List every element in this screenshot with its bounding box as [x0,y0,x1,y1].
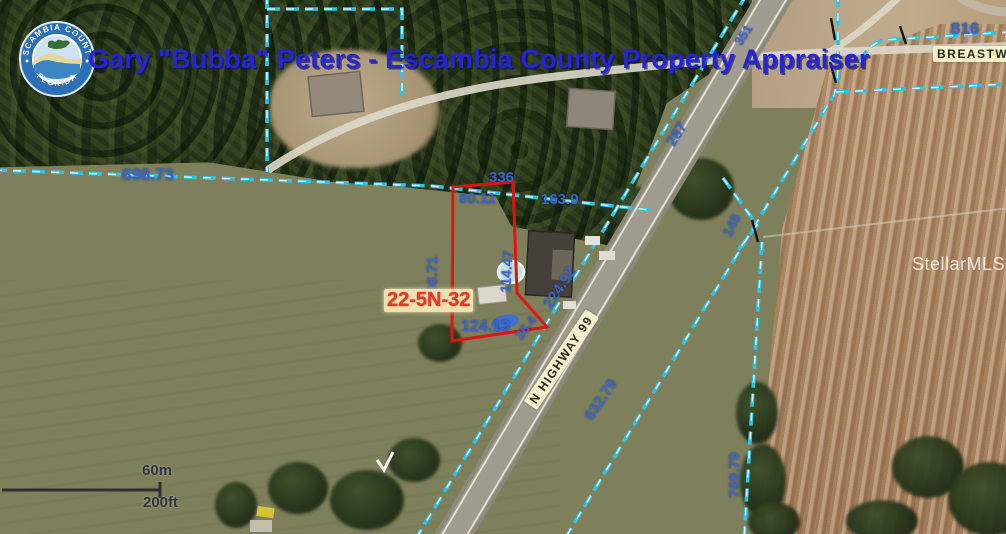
escambia-county-logo: ESCAMBIA COUNTY FLORIDA [18,20,96,98]
dimension-label: 124.13 [461,318,510,336]
dimension-label: 114.47 [497,250,516,293]
scale-bar [2,482,160,498]
corner-road [958,0,1006,12]
survey-tick [831,18,835,40]
road-number-label: 816 [951,19,979,39]
cross-street-label: BREASTWO [933,46,1006,62]
field-track [763,208,1006,237]
parcel-id-label[interactable]: 22-5N-32 [384,289,473,312]
dimension-label: 336 [489,169,514,186]
survey-tick [900,26,906,44]
stellar-mls-watermark: StellarMLS [912,254,1005,275]
page-title: Gary "Bubba" Peters - Escambia County Pr… [88,44,870,75]
dimension-label: 80.11 [459,190,496,207]
check-mark [377,452,393,470]
dimension-label: 898.73 [122,165,174,185]
dimension-label: 769.79 [726,452,743,498]
scale-imperial-label: 200ft [143,494,178,511]
map-view[interactable]: ESCAMBIA COUNTY FLORIDA Gary "Bubba" Pet… [0,0,1006,534]
scale-metric-label: 60m [142,462,172,479]
dimension-label: 163.9 [541,191,579,208]
